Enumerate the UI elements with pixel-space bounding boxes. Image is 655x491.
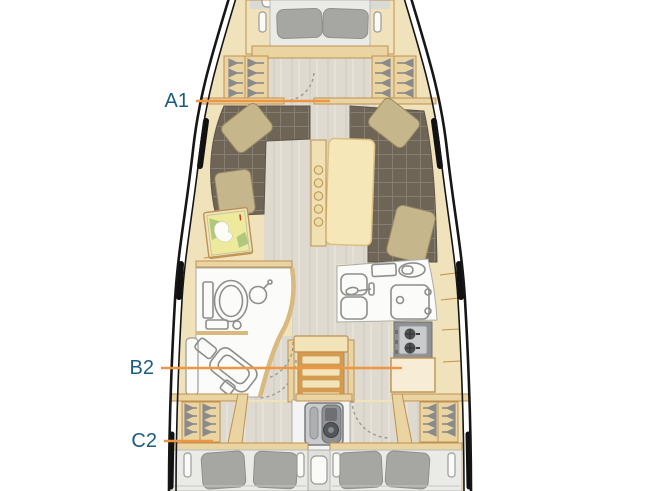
grab-handle [259, 12, 266, 32]
fridge [391, 285, 431, 319]
aft-bulkhead [170, 394, 240, 401]
shelf-locker-aft-starboard [420, 402, 458, 442]
aft-cabin-starboard-bed [330, 450, 462, 491]
salon-table [311, 138, 375, 246]
cabin-label-a1-text: A1 [165, 90, 189, 112]
aft-cabin-port-bed [172, 450, 308, 491]
aft-bulkhead [398, 394, 470, 401]
stair-sidewall [348, 340, 354, 402]
stove [394, 322, 432, 358]
engine [305, 403, 343, 445]
floorplan-canvas: A1 B2 C2 [0, 0, 655, 491]
bed-foot-board [252, 46, 388, 58]
pillow [385, 451, 430, 490]
grab-handle [448, 453, 455, 477]
shelf-locker-aft-port [182, 402, 220, 442]
shelf-locker-port [224, 56, 268, 98]
grab-handle [374, 12, 381, 32]
hatch [311, 456, 327, 484]
companionway-platform [294, 336, 348, 352]
pillow [253, 451, 298, 489]
pillow [277, 8, 323, 39]
forward-bulkhead [314, 98, 436, 104]
aft-bulkhead [296, 394, 352, 401]
pillow [338, 451, 383, 489]
shower-bench [186, 338, 198, 395]
grab-handle [184, 453, 191, 477]
grab-handle [297, 453, 304, 477]
salon-aft-wall [196, 261, 292, 267]
yacht-floorplan: A1 B2 C2 [0, 0, 655, 491]
cabin-label-c2-text: C2 [131, 430, 157, 452]
pillow [201, 451, 246, 490]
grab-handle [333, 453, 340, 477]
chart-table [203, 207, 252, 258]
shelf-locker-starboard [372, 56, 416, 98]
galley-cabinet [391, 358, 435, 392]
cabin-label-b2-text: B2 [130, 357, 154, 379]
pillow [322, 8, 368, 39]
table-top [325, 138, 375, 246]
